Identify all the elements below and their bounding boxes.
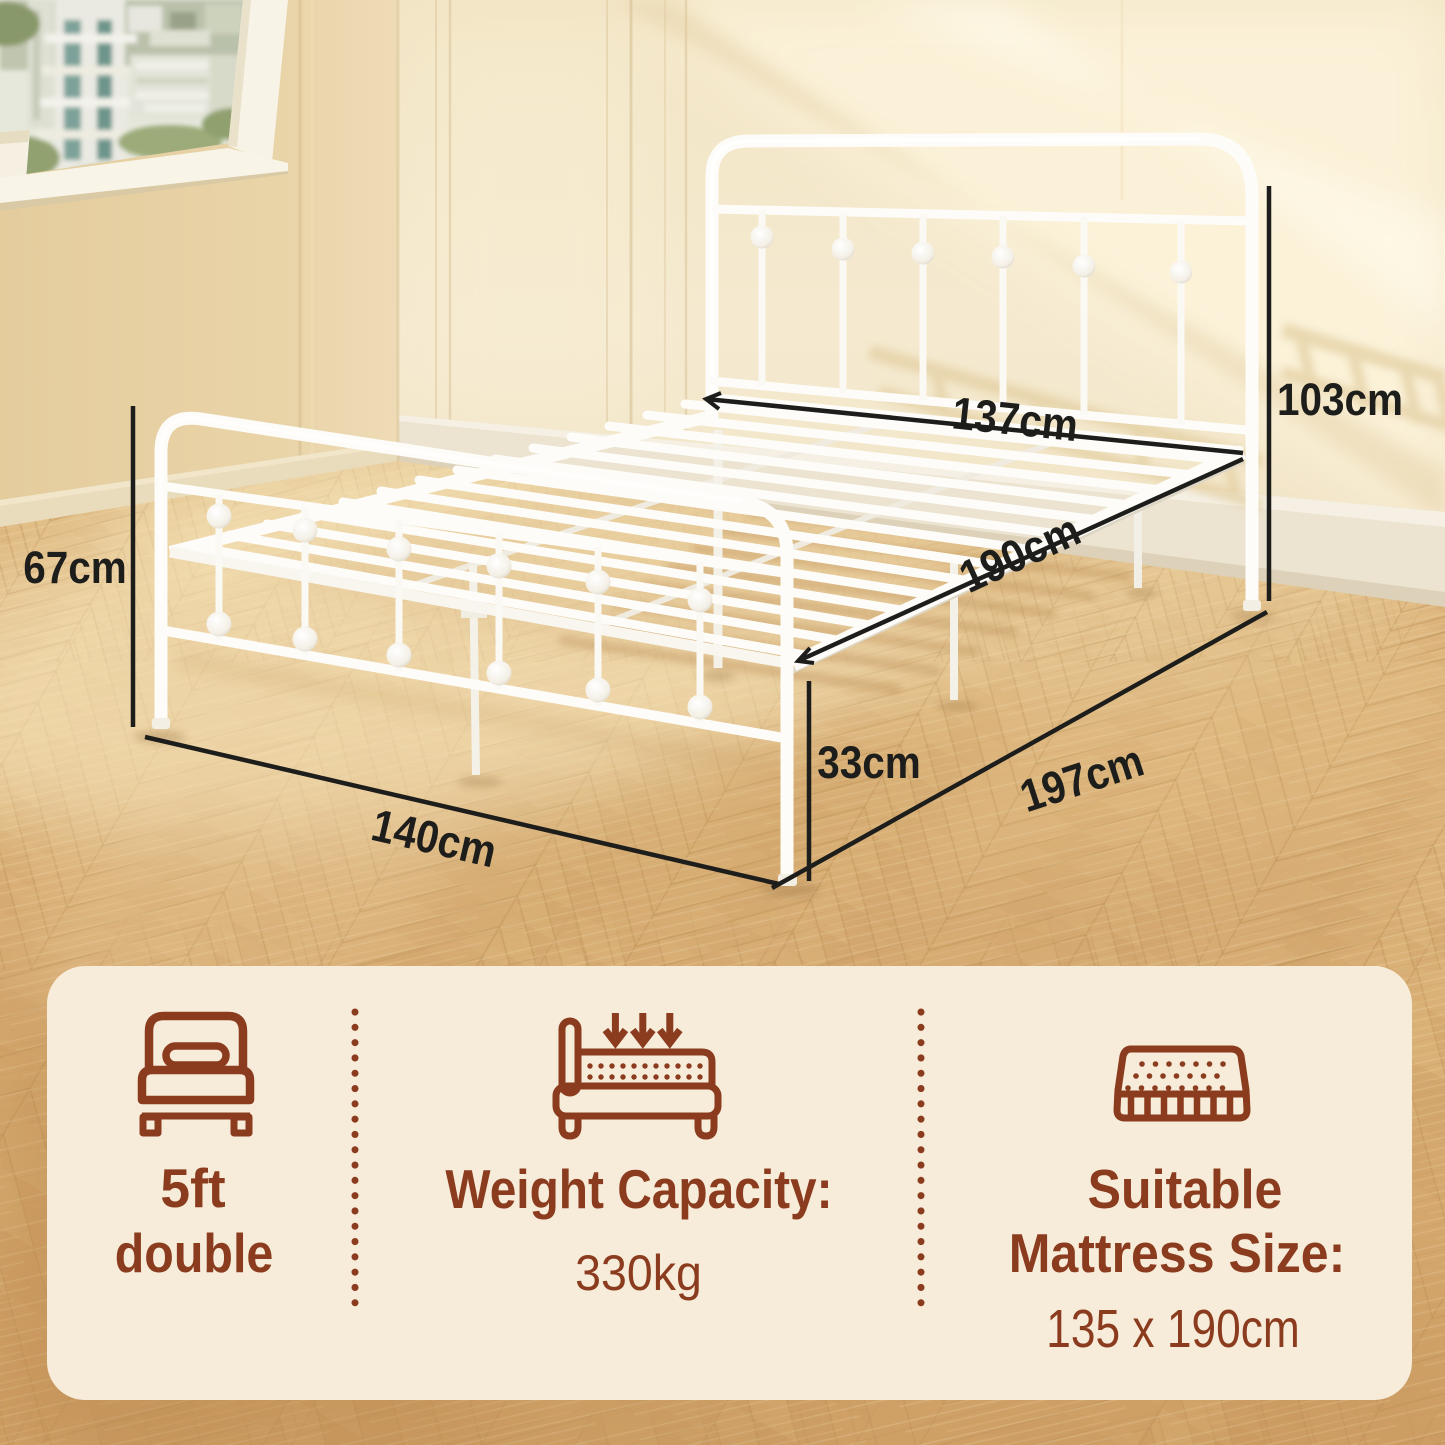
svg-text:33cm: 33cm [817,738,921,789]
svg-text:67cm: 67cm [23,543,127,594]
svg-text:135 x 190cm: 135 x 190cm [1046,1299,1299,1359]
svg-text:330kg: 330kg [575,1245,702,1301]
svg-text:Suitable: Suitable [1088,1159,1283,1221]
svg-text:Mattress Size:: Mattress Size: [1009,1223,1346,1285]
svg-text:Weight Capacity:: Weight Capacity: [445,1158,832,1220]
svg-text:5ft: 5ft [160,1158,225,1219]
svg-text:103cm: 103cm [1277,375,1403,426]
svg-text:double: double [115,1222,274,1284]
